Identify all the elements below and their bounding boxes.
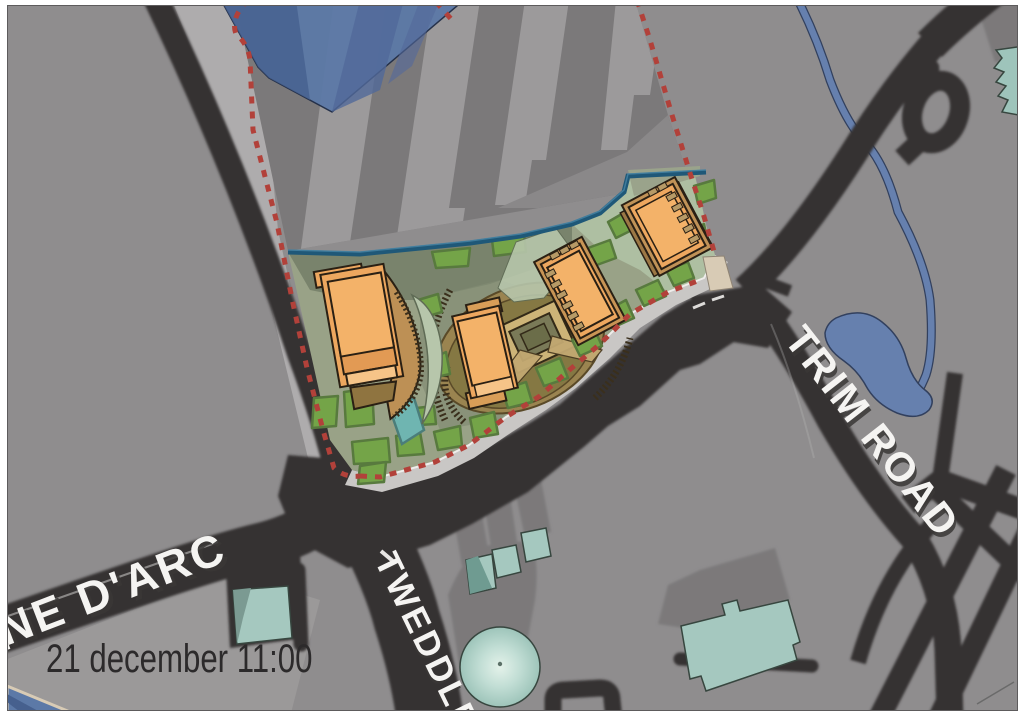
svg-text:21 december 11:00: 21 december 11:00 [46, 636, 312, 681]
